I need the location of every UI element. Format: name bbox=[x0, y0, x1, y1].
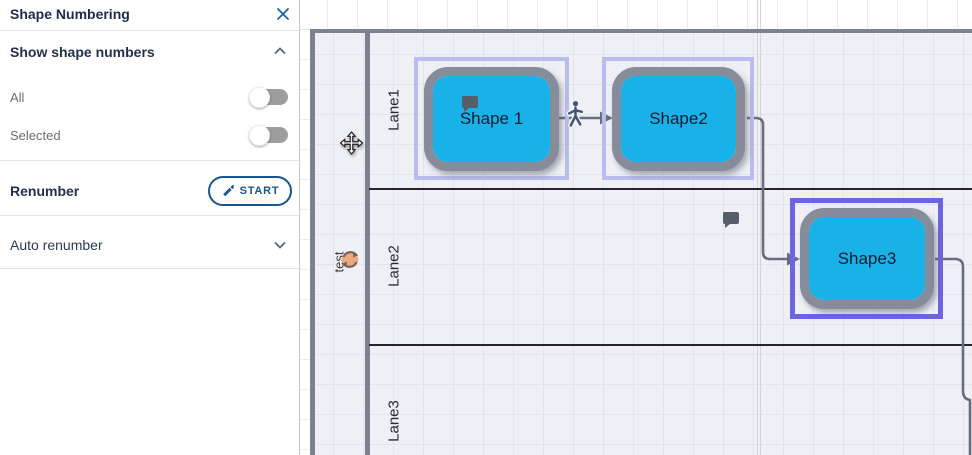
comment-icon[interactable] bbox=[461, 95, 479, 112]
diagram-canvas[interactable]: test Lane1 Lane2 Lane3 Shape 1 bbox=[300, 0, 972, 455]
toggle-selected-label: Selected bbox=[10, 128, 61, 143]
chevron-down-icon[interactable] bbox=[274, 241, 286, 249]
panel-title: Shape Numbering bbox=[10, 6, 130, 22]
shape-3-label: Shape3 bbox=[838, 249, 897, 269]
auto-renumber-label: Auto renumber bbox=[10, 237, 103, 253]
selection-outline: Shape2 bbox=[602, 57, 754, 180]
divider bbox=[0, 215, 299, 216]
app-window: Shape Numbering Show shape numbers All S… bbox=[0, 0, 972, 455]
renumber-label: Renumber bbox=[10, 183, 79, 199]
shape-3[interactable]: Shape3 bbox=[800, 208, 934, 309]
start-button-label: START bbox=[240, 185, 280, 197]
show-shape-numbers-label: Show shape numbers bbox=[10, 44, 155, 60]
shape-1[interactable]: Shape 1 bbox=[424, 67, 559, 171]
start-button[interactable]: START bbox=[208, 176, 292, 206]
wand-icon bbox=[221, 184, 235, 198]
divider bbox=[0, 160, 299, 161]
toggle-knob bbox=[249, 87, 270, 108]
selection-outline-primary: Shape3 bbox=[790, 198, 943, 319]
shape-numbering-panel: Shape Numbering Show shape numbers All S… bbox=[0, 0, 300, 455]
toggle-selected[interactable] bbox=[251, 127, 288, 143]
toggle-all[interactable] bbox=[251, 89, 288, 105]
toggle-all-label: All bbox=[10, 90, 24, 105]
shape-2[interactable]: Shape2 bbox=[612, 67, 745, 171]
close-icon[interactable] bbox=[275, 6, 291, 22]
toggle-knob bbox=[249, 125, 270, 146]
shape-1-label: Shape 1 bbox=[460, 109, 523, 129]
comment-icon[interactable] bbox=[722, 211, 740, 228]
divider bbox=[0, 268, 299, 269]
sync-badge-icon bbox=[339, 248, 361, 271]
shape-2-label: Shape2 bbox=[649, 109, 708, 129]
person-icon bbox=[565, 99, 586, 132]
move-cursor-icon bbox=[340, 128, 363, 158]
divider bbox=[0, 30, 299, 31]
chevron-up-icon[interactable] bbox=[274, 47, 286, 55]
selection-outline: Shape 1 bbox=[414, 57, 569, 180]
